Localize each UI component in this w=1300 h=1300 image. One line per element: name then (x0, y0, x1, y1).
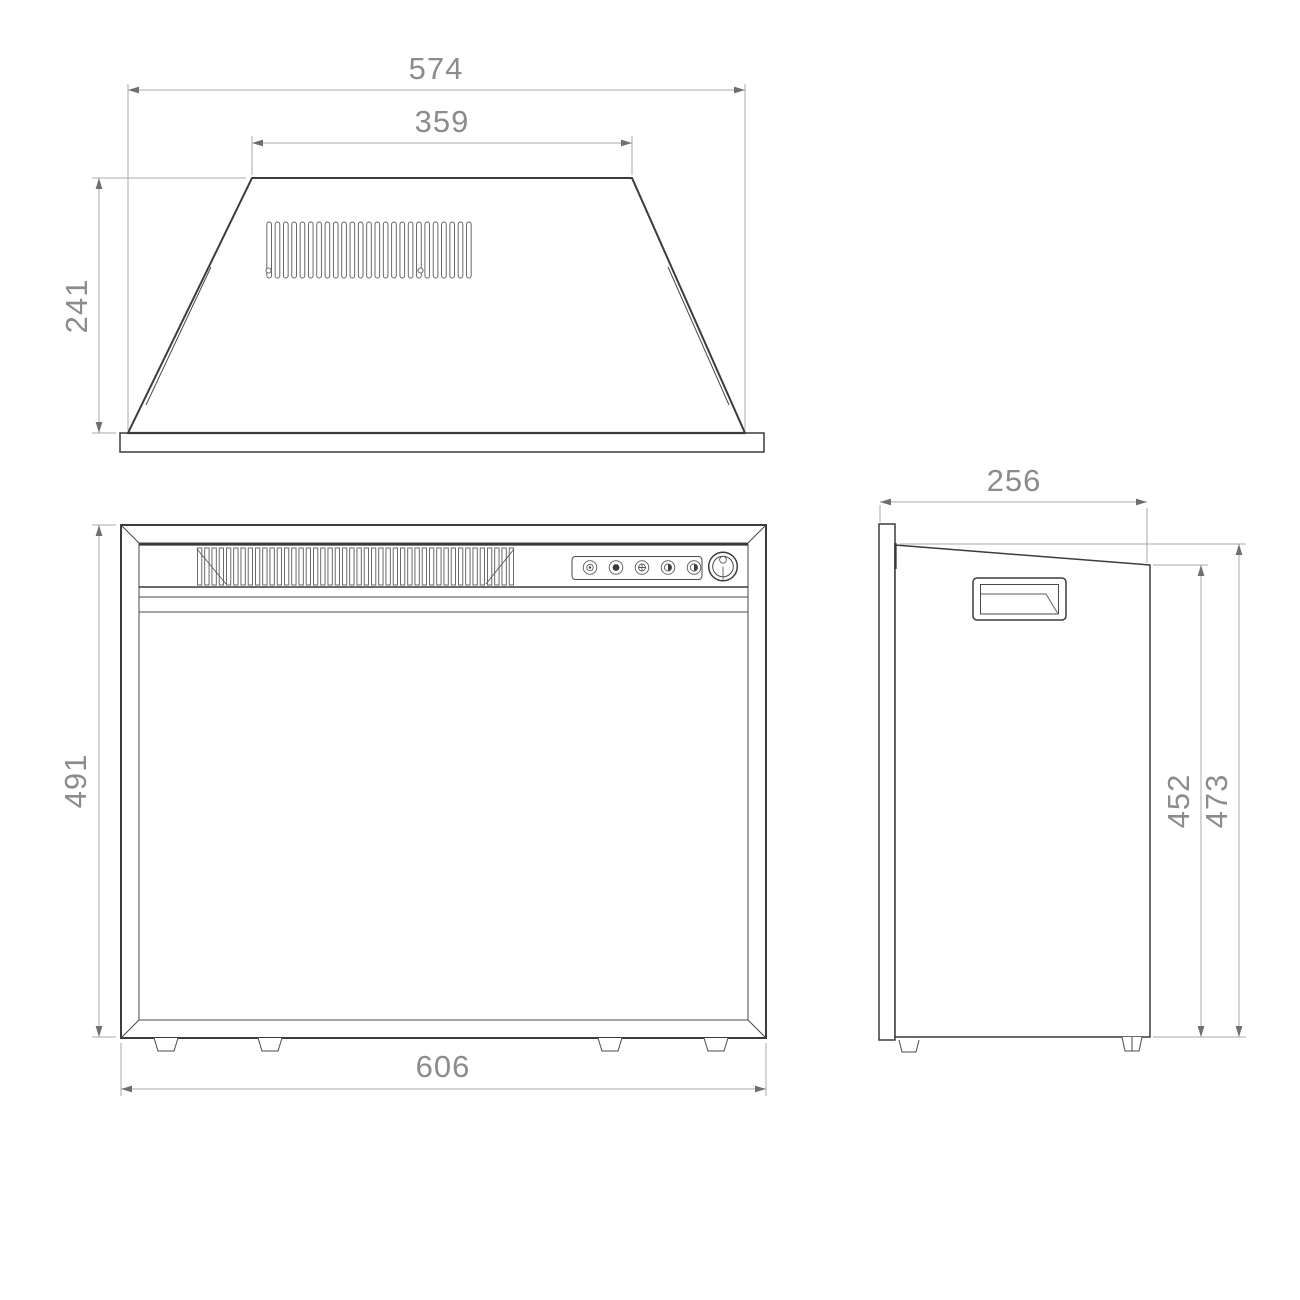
dim-value-473: 473 (1199, 774, 1234, 829)
dim-arrow-right (734, 87, 745, 94)
grille-bar (335, 548, 339, 585)
vent-slot (375, 222, 380, 278)
vent-slot (283, 222, 288, 278)
front-foot-2 (258, 1038, 282, 1051)
power-knob-icon (709, 552, 738, 581)
dim-arrow-bottom (1198, 1026, 1205, 1037)
dim-value-606: 606 (416, 1049, 471, 1084)
side-foot-rear (1122, 1037, 1142, 1051)
grille-bar (226, 548, 230, 585)
vent-slot (308, 222, 313, 278)
dim-arrow-top (1198, 565, 1205, 576)
front-foot-4 (704, 1038, 728, 1051)
dim-value-359: 359 (415, 104, 470, 139)
grille-bar (219, 548, 223, 585)
grille-bar (212, 548, 216, 585)
dim-front-height: 491 (58, 525, 116, 1037)
grille-bar (393, 548, 397, 585)
grille-bar (306, 548, 310, 585)
grille-bar (328, 548, 332, 585)
control-button-half-icon (661, 561, 675, 575)
vent-slot (433, 222, 438, 278)
vent-slot (342, 222, 347, 278)
top-view: 574 359 241 (59, 51, 764, 452)
grille-bar (248, 548, 252, 585)
vent-slot (292, 222, 297, 278)
grille-bar (270, 548, 274, 585)
grille-bar (437, 548, 441, 585)
side-handle (973, 578, 1066, 620)
dim-arrow-top (1236, 544, 1243, 555)
grille-bar (234, 548, 238, 585)
grille-bar (205, 548, 209, 585)
grille-bar (408, 548, 412, 585)
grille-bar (400, 548, 404, 585)
grille-bar (444, 548, 448, 585)
vent-slot (442, 222, 447, 278)
vent-slot (300, 222, 305, 278)
dim-arrow-top (96, 178, 103, 189)
vent-slot (367, 222, 372, 278)
dim-value-241: 241 (59, 279, 94, 334)
grille-bar (350, 548, 354, 585)
control-button-half-icon (687, 561, 701, 575)
grille-bar (357, 548, 361, 585)
dim-arrow-left (880, 499, 891, 506)
grille-bar (364, 548, 368, 585)
grille-bar (255, 548, 259, 585)
vent-slot (408, 222, 413, 278)
dim-extension-lines (92, 525, 116, 1037)
grille-bar (379, 548, 383, 585)
knob-indicator-dot (720, 556, 727, 563)
grille-bar (284, 548, 288, 585)
grille-bar (342, 548, 346, 585)
handle-inner (981, 585, 1059, 615)
grille-bar (466, 548, 470, 585)
grille-bar (371, 548, 375, 585)
grille-bar (277, 548, 281, 585)
control-button-dot-icon (609, 561, 623, 575)
dim-arrow-bottom (96, 1026, 103, 1037)
vent-slot (358, 222, 363, 278)
top-view-base-plate (120, 433, 764, 452)
front-inner-frame (139, 543, 748, 1020)
vent-slot (325, 222, 330, 278)
vent-screw-right (418, 268, 423, 273)
vent-slot (450, 222, 455, 278)
dim-arrow-left (252, 140, 263, 147)
vent-slot (425, 222, 430, 278)
vent-slot (275, 222, 280, 278)
button-glyph (589, 566, 591, 568)
vent-slot (383, 222, 388, 278)
top-view-hood-outline (128, 178, 745, 433)
grille-bar (241, 548, 245, 585)
dim-arrow-bottom (96, 422, 103, 433)
side-front-flange (879, 524, 895, 1040)
vent-slot (467, 222, 472, 278)
dim-arrow-left (121, 1086, 132, 1093)
control-button-cross-icon (635, 561, 649, 575)
grille-bar (429, 548, 433, 585)
dim-front-width: 606 (121, 1043, 766, 1096)
grille-bar (458, 548, 462, 585)
grille-bar (292, 548, 296, 585)
grille-bar (321, 548, 325, 585)
button-glyph (613, 564, 620, 571)
front-foot-3 (598, 1038, 622, 1051)
grille-bar (299, 548, 303, 585)
drawing-canvas: 574 359 241 (0, 0, 1300, 1300)
dim-top-top-width: 359 (252, 104, 632, 175)
grille-bar (263, 548, 267, 585)
side-foot-front (899, 1040, 919, 1052)
vent-slot (458, 222, 463, 278)
control-button-ring-icon (583, 561, 597, 575)
front-view: 491 606 (58, 525, 766, 1096)
front-foot-1 (154, 1038, 178, 1051)
dim-arrow-left (128, 87, 139, 94)
vent-slot (400, 222, 405, 278)
dim-value-452: 452 (1161, 774, 1196, 829)
dim-arrow-bottom (1236, 1026, 1243, 1037)
vent-slot (350, 222, 355, 278)
vent-screw-left (266, 268, 271, 273)
dim-value-256: 256 (987, 463, 1042, 498)
grille-bar (422, 548, 426, 585)
dim-arrow-top (96, 525, 103, 536)
grille-bar (451, 548, 455, 585)
vent-slot (333, 222, 338, 278)
grille-bar (386, 548, 390, 585)
dim-arrow-right (621, 140, 632, 147)
grille-bar (473, 548, 477, 585)
dim-value-491: 491 (58, 754, 93, 809)
grille-bar (502, 548, 506, 585)
dim-arrow-right (755, 1086, 766, 1093)
grille-bar (480, 548, 484, 585)
grille-bar (415, 548, 419, 585)
dim-extension-lines (252, 136, 632, 175)
vent-slot (392, 222, 397, 278)
side-view: 256 452 473 (879, 463, 1246, 1052)
technical-drawing-page: 574 359 241 (0, 0, 1300, 1300)
dim-arrow-right (1136, 499, 1147, 506)
grille-bar (495, 548, 499, 585)
vent-slot (317, 222, 322, 278)
grille-bar (313, 548, 317, 585)
dim-value-574: 574 (409, 51, 464, 86)
